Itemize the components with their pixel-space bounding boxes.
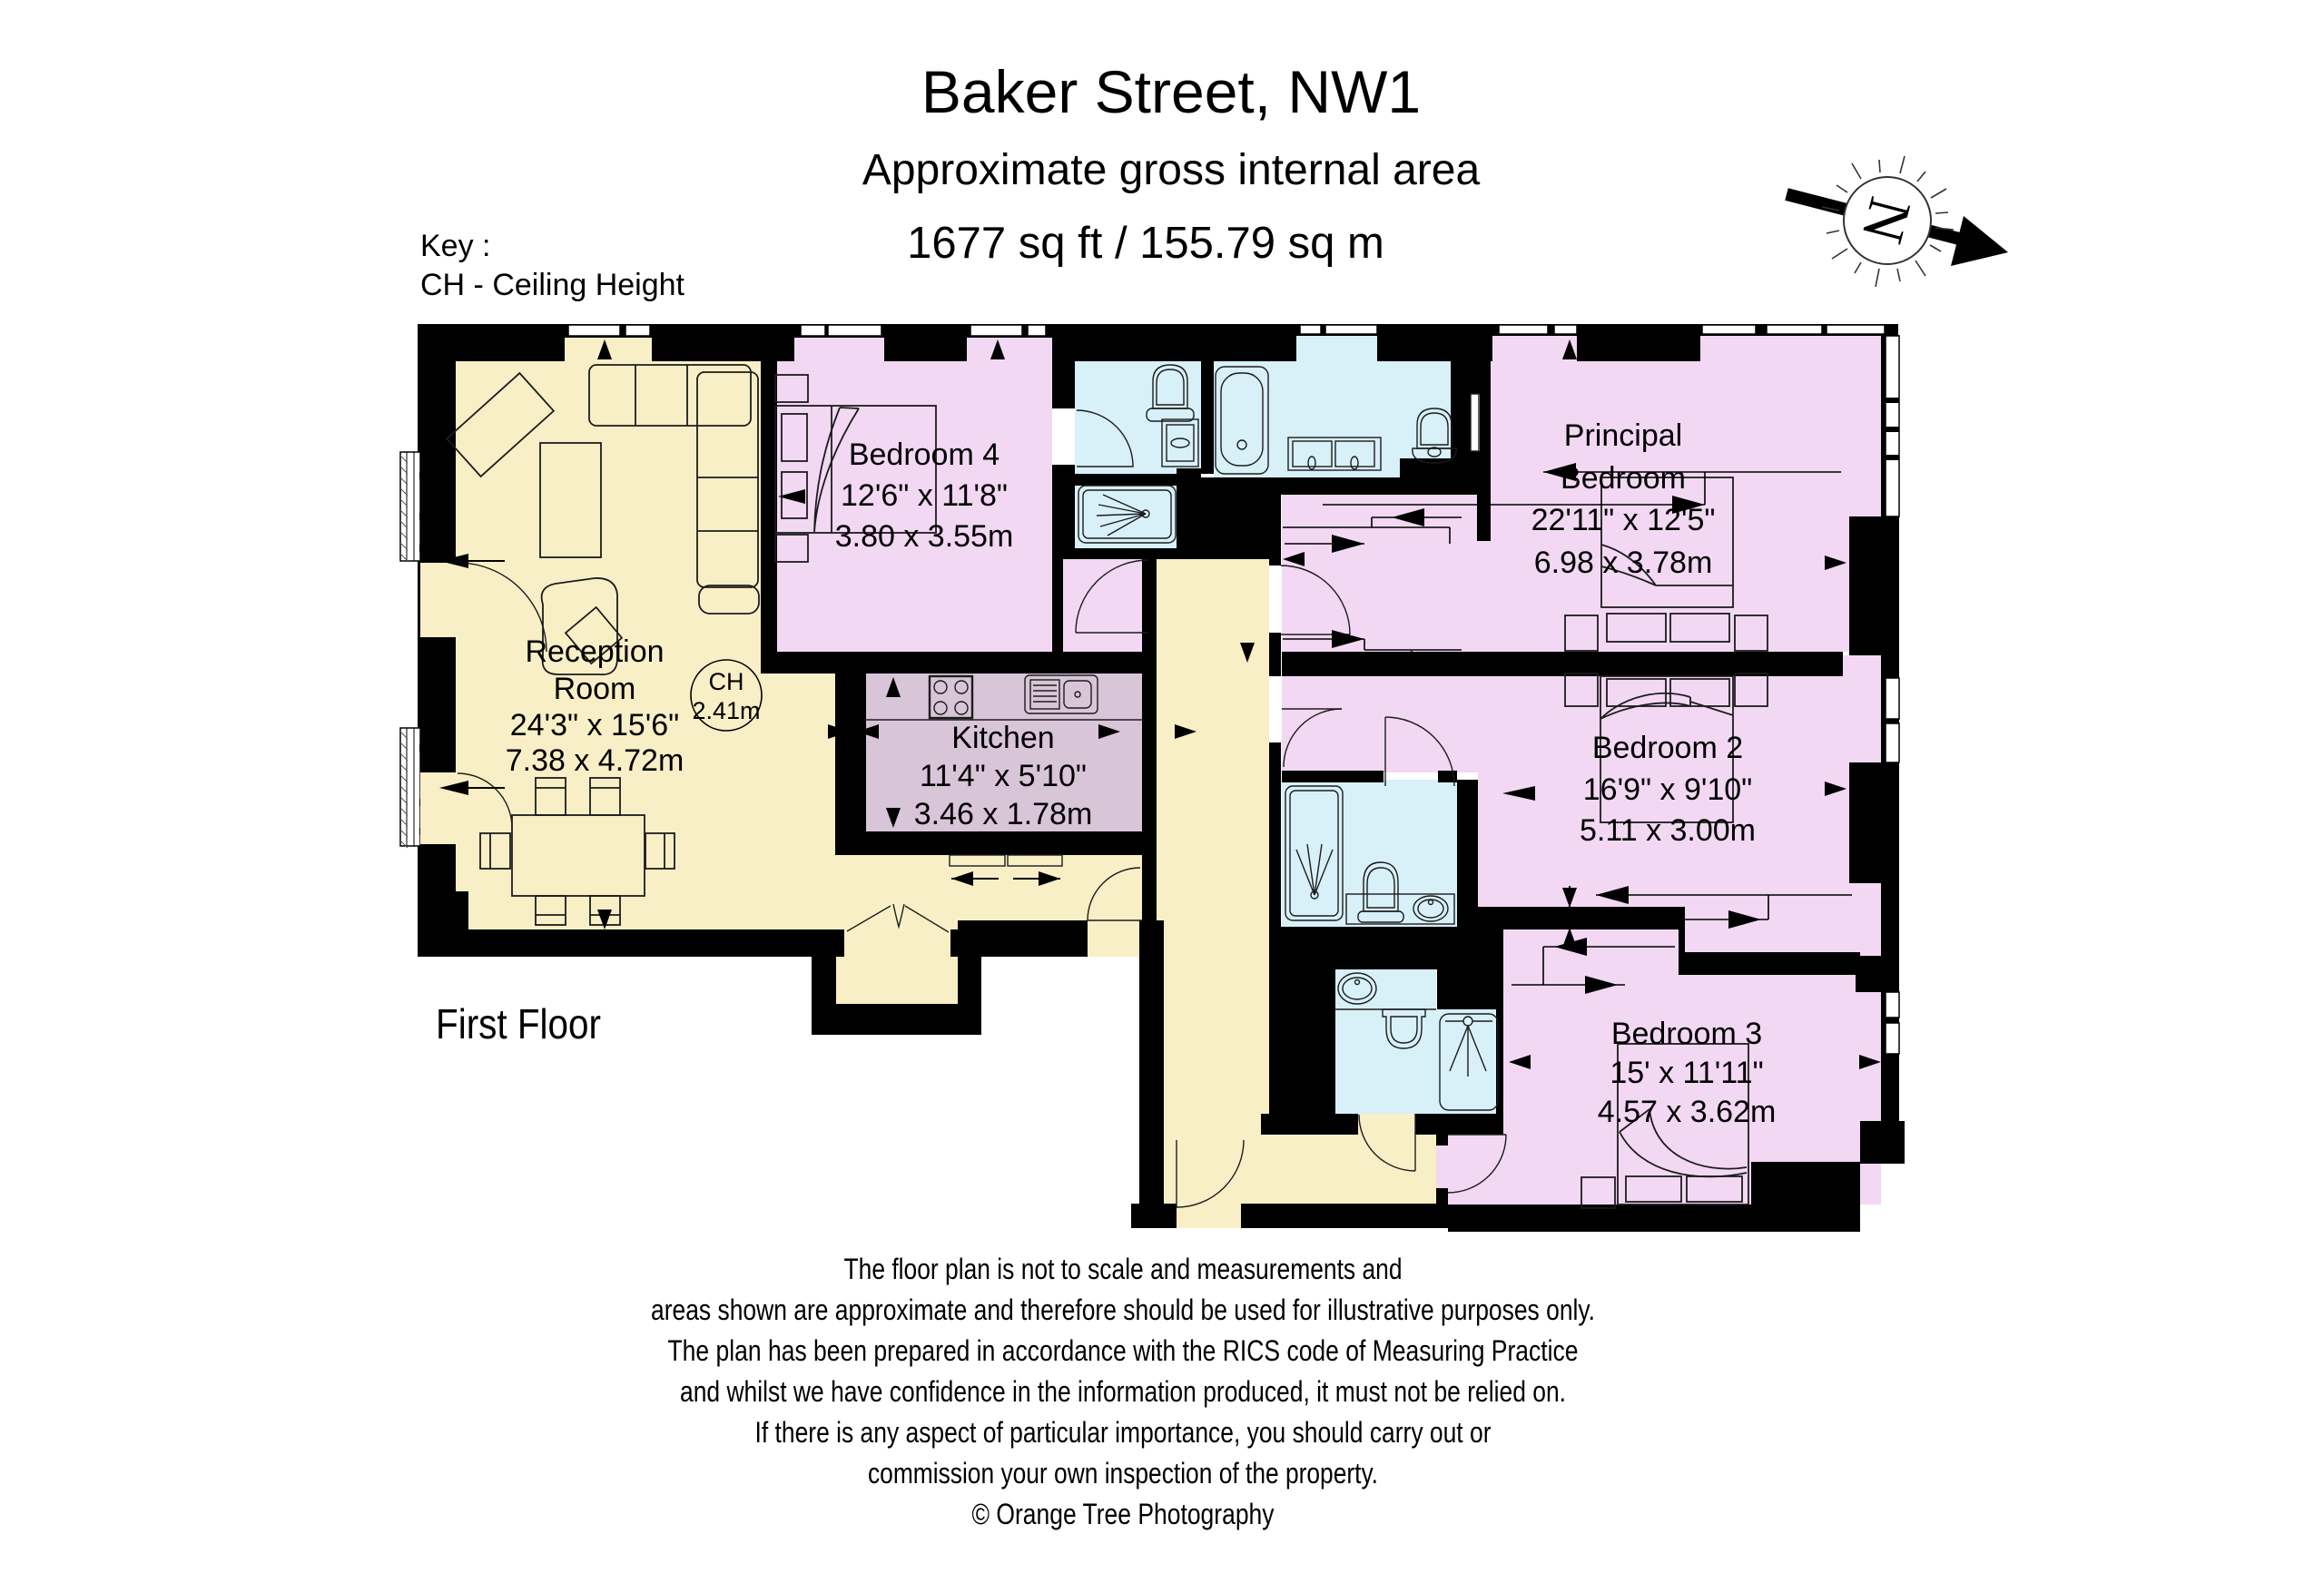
svg-text:If there is any aspect of part: If there is any aspect of particular imp… xyxy=(755,1416,1492,1449)
svg-text:Room: Room xyxy=(554,672,636,706)
svg-text:22'11" x 12'5": 22'11" x 12'5" xyxy=(1531,503,1716,537)
svg-text:Principal: Principal xyxy=(1564,418,1682,453)
svg-text:Bedroom 3: Bedroom 3 xyxy=(1611,1017,1762,1051)
svg-text:4.57 x 3.62m: 4.57 x 3.62m xyxy=(1598,1095,1777,1129)
svg-text:16'9" x 9'10": 16'9" x 9'10" xyxy=(1583,772,1752,807)
svg-text:Approximate gross internal are: Approximate gross internal area xyxy=(862,146,1481,194)
svg-text:11'4" x 5'10": 11'4" x 5'10" xyxy=(920,759,1087,793)
svg-text:Bedroom: Bedroom xyxy=(1561,461,1686,496)
svg-text:First Floor: First Floor xyxy=(436,1000,601,1047)
svg-text:Kitchen: Kitchen xyxy=(951,721,1054,755)
svg-text:Baker Street, NW1: Baker Street, NW1 xyxy=(921,58,1421,125)
svg-text:24'3" x 15'6": 24'3" x 15'6" xyxy=(510,708,679,742)
svg-text:© Orange Tree Photography: © Orange Tree Photography xyxy=(972,1498,1275,1530)
svg-text:3.46 x 1.78m: 3.46 x 1.78m xyxy=(914,797,1093,831)
svg-text:1677 sq ft / 155.79 sq m: 1677 sq ft / 155.79 sq m xyxy=(907,219,1384,268)
svg-text:Key :: Key : xyxy=(420,229,490,263)
svg-text:areas shown are approximate an: areas shown are approximate and therefor… xyxy=(651,1293,1595,1326)
svg-text:3.80 x 3.55m: 3.80 x 3.55m xyxy=(835,519,1014,554)
svg-text:12'6" x 11'8": 12'6" x 11'8" xyxy=(841,478,1008,513)
svg-text:and whilst we have confidence: and whilst we have confidence in the inf… xyxy=(680,1375,1566,1408)
svg-text:15' x 11'11": 15' x 11'11" xyxy=(1610,1056,1763,1090)
svg-text:Bedroom 2: Bedroom 2 xyxy=(1592,731,1743,765)
svg-text:commission your own inspection: commission your own inspection of the pr… xyxy=(868,1457,1378,1490)
svg-text:CH: CH xyxy=(709,668,744,695)
svg-text:2.41m: 2.41m xyxy=(692,697,760,724)
svg-text:Bedroom 4: Bedroom 4 xyxy=(849,438,1000,472)
svg-text:The plan has been prepared in: The plan has been prepared in accordance… xyxy=(668,1334,1579,1367)
svg-text:5.11 x 3.00m: 5.11 x 3.00m xyxy=(1580,813,1756,848)
svg-text:6.98 x 3.78m: 6.98 x 3.78m xyxy=(1534,546,1713,580)
svg-text:The floor plan is not to scale: The floor plan is not to scale and measu… xyxy=(844,1253,1403,1285)
svg-text:Reception: Reception xyxy=(525,634,664,669)
svg-text:CH - Ceiling Height: CH - Ceiling Height xyxy=(420,268,685,302)
svg-text:7.38 x 4.72m: 7.38 x 4.72m xyxy=(506,743,684,778)
